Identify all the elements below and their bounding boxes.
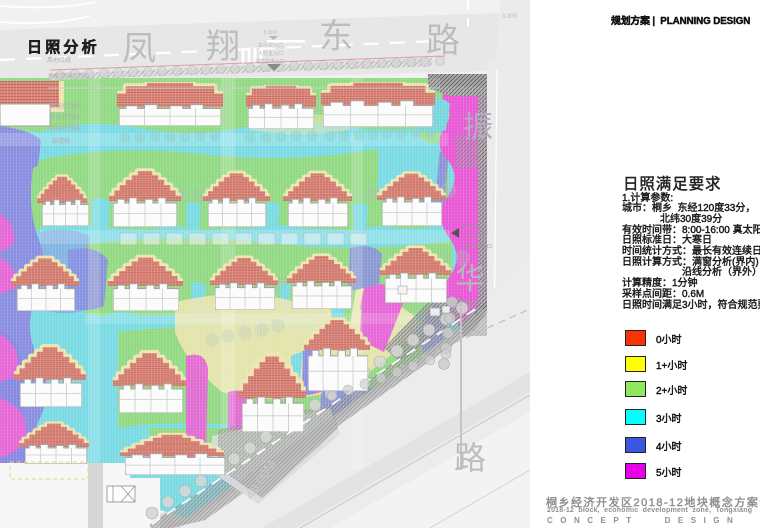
svg-text:路: 路: [426, 22, 460, 60]
svg-text:车行次入口: 车行次入口: [462, 223, 487, 230]
svg-text:3.300: 3.300: [263, 30, 277, 36]
svg-text:消防车出入口: 消防车出入口: [255, 58, 285, 65]
svg-text:首层控制线: 首层控制线: [50, 102, 80, 110]
svg-text:围墙线: 围墙线: [52, 137, 70, 145]
svg-text:振: 振: [463, 111, 493, 144]
svg-text:翔: 翔: [206, 28, 240, 66]
svg-text:用地红线: 用地红线: [47, 56, 71, 64]
svg-text:地库范围控制线: 地库范围控制线: [48, 72, 90, 80]
svg-text:路: 路: [454, 440, 486, 476]
svg-text:日照分析: 日照分析: [27, 38, 100, 56]
svg-text:华: 华: [455, 263, 485, 296]
svg-text:凤: 凤: [122, 30, 156, 68]
svg-text:消防车出入口: 消防车出入口: [462, 243, 492, 250]
svg-text:东: 东: [319, 18, 353, 56]
svg-text:3.300: 3.300: [502, 14, 518, 20]
svg-text:低层控制线: 低层控制线: [50, 124, 80, 132]
svg-text:人行次入口: 人行次入口: [462, 233, 487, 240]
svg-text:多层控制线: 多层控制线: [50, 113, 80, 121]
svg-text:车行次入口: 车行次入口: [258, 42, 283, 49]
svg-text:人行主入口: 人行主入口: [258, 50, 283, 57]
